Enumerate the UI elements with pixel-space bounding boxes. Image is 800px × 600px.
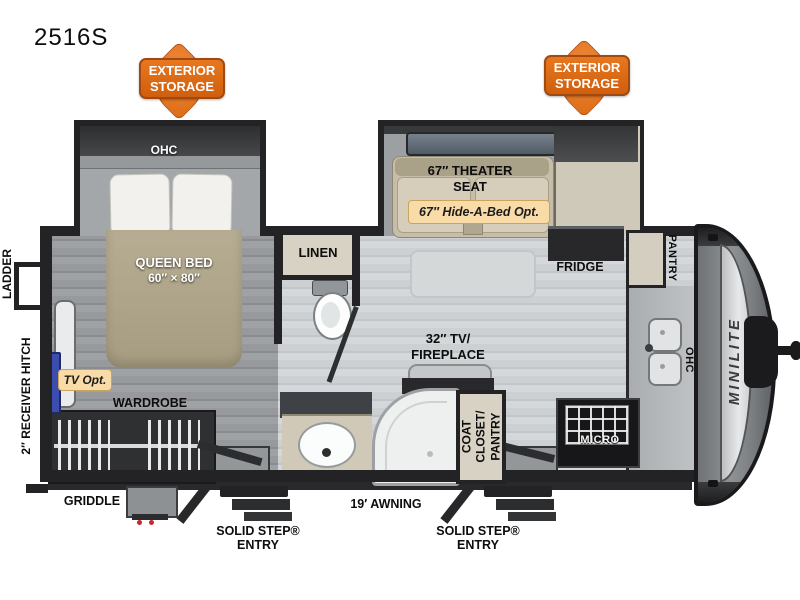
rear-bumper [26, 484, 48, 493]
bath-wall-right [352, 230, 360, 306]
theater-window [406, 132, 562, 156]
theater-seat-label: 67″ THEATER [390, 164, 550, 179]
shower-drain-icon [427, 451, 433, 457]
propane-cover [744, 316, 778, 388]
callout-line: EXTERIOR [554, 60, 620, 75]
coat-closet-label: COAT CLOSET/ PANTRY [459, 411, 502, 463]
slide-cabinet-roof [554, 126, 638, 162]
micro-label: MICRO [560, 434, 640, 447]
pantry-cabinet [626, 230, 666, 288]
pillow [109, 173, 170, 236]
hitch-coupler-icon [790, 341, 800, 360]
bath-sink [298, 422, 356, 468]
griddle-knob-icon [149, 520, 154, 525]
griddle-knob-icon [137, 520, 142, 525]
griddle-label: GRIDDLE [56, 494, 128, 508]
bedroom-slideout [74, 120, 266, 236]
wardrobe-label: WARDROBE [100, 396, 200, 410]
sink-drain-icon [660, 330, 665, 335]
coat-closet-pantry: COAT CLOSET/ PANTRY [456, 390, 506, 484]
brand-label: MINILITE [726, 251, 742, 471]
hide-a-bed-option-badge: 67″ Hide-A-Bed Opt. [408, 200, 550, 224]
wall-bottom [40, 470, 698, 482]
wall-rear [40, 226, 52, 482]
area-rug [410, 250, 536, 298]
awning-label: 19′ AWNING [330, 497, 442, 511]
hanging-clothes [148, 420, 200, 474]
theater-seat-label2: SEAT [390, 180, 550, 195]
floorplan-canvas: 2516S EXTERIOR STORAGE EXTERIOR STORAGE … [0, 0, 800, 600]
kitchen-faucet-icon [645, 344, 653, 352]
ladder-label: LADDER [0, 239, 14, 309]
shower-inner-curve [385, 401, 447, 473]
sink-drain-icon [660, 364, 665, 369]
pillow [171, 173, 232, 236]
tv-fireplace-label: 32″ TV/ [398, 332, 498, 347]
ohc-cabinet [80, 156, 260, 169]
callout-line: STORAGE [555, 76, 619, 91]
model-number-title: 2516S [34, 24, 108, 52]
step-tread [232, 499, 290, 510]
hanging-clothes [58, 420, 110, 474]
kitchen-ohc-label: OHC [681, 340, 695, 380]
pantry-label: PANTRY [664, 228, 678, 288]
kitchen-sink-basin [648, 352, 682, 386]
callout-line: STORAGE [150, 79, 214, 94]
kitchen-sink-basin [648, 318, 682, 352]
queen-bed-size-label: 60″ × 80″ [106, 272, 242, 286]
linen-closet: LINEN [278, 230, 360, 280]
receiver-hitch-label: 2″ RECEIVER HITCH [19, 321, 33, 471]
cap-marker [708, 234, 718, 241]
step-tread [496, 499, 554, 510]
fridge [548, 226, 624, 261]
cap-marker [708, 480, 718, 487]
step-tread [244, 512, 292, 521]
bath-faucet-icon [322, 448, 331, 457]
bath-wall-left [274, 230, 282, 344]
solid-step-entry-label-left: SOLID STEP® ENTRY [208, 524, 308, 553]
callout-line: EXTERIOR [149, 63, 215, 78]
exterior-storage-callout-2: EXTERIOR STORAGE [544, 55, 630, 96]
fridge-label: FRIDGE [540, 260, 620, 274]
solid-step-entry-label-right: SOLID STEP® ENTRY [428, 524, 528, 553]
tv-option-badge: TV Opt. [58, 369, 112, 391]
bedroom-ohc-label: OHC [74, 144, 254, 158]
tv-fireplace-label2: FIREPLACE [398, 348, 498, 363]
exterior-storage-callout-1: EXTERIOR STORAGE [139, 58, 225, 99]
stove [556, 398, 640, 468]
linen-label: LINEN [283, 246, 353, 261]
step-tread [484, 486, 552, 497]
queen-bed-label: QUEEN BED [106, 256, 242, 271]
queen-bed [106, 230, 242, 368]
step-tread [508, 512, 556, 521]
step-tread [220, 486, 288, 497]
toilet-bowl-inner [321, 302, 340, 328]
